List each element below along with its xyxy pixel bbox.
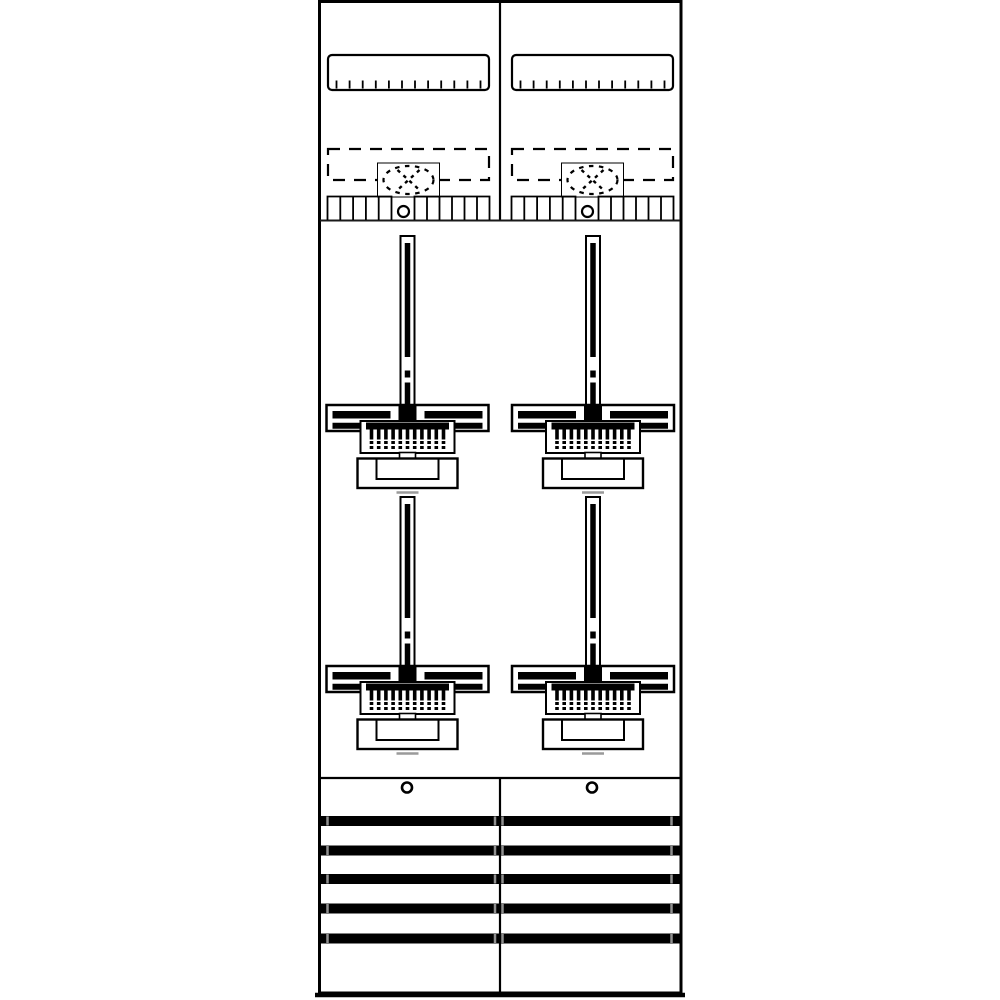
meter-unit-bottom-left [327, 497, 489, 754]
meter-panel-screenshot [0, 0, 1000, 1000]
top-section-left-column [328, 55, 490, 220]
panel-screw-left [402, 783, 412, 793]
busbar [321, 904, 680, 913]
meter-unit-bottom-right [512, 497, 674, 754]
meter-unit-top-left [327, 236, 489, 493]
meter-board [315, 2, 685, 996]
top-section-right-column [512, 55, 674, 220]
busbar [321, 875, 680, 884]
meter-panel-drawing [0, 0, 1000, 1000]
busbar [321, 934, 680, 943]
panel-screw-right [587, 783, 597, 793]
busbar [321, 846, 680, 855]
busbar [321, 817, 680, 826]
meter-unit-top-right [512, 236, 674, 493]
